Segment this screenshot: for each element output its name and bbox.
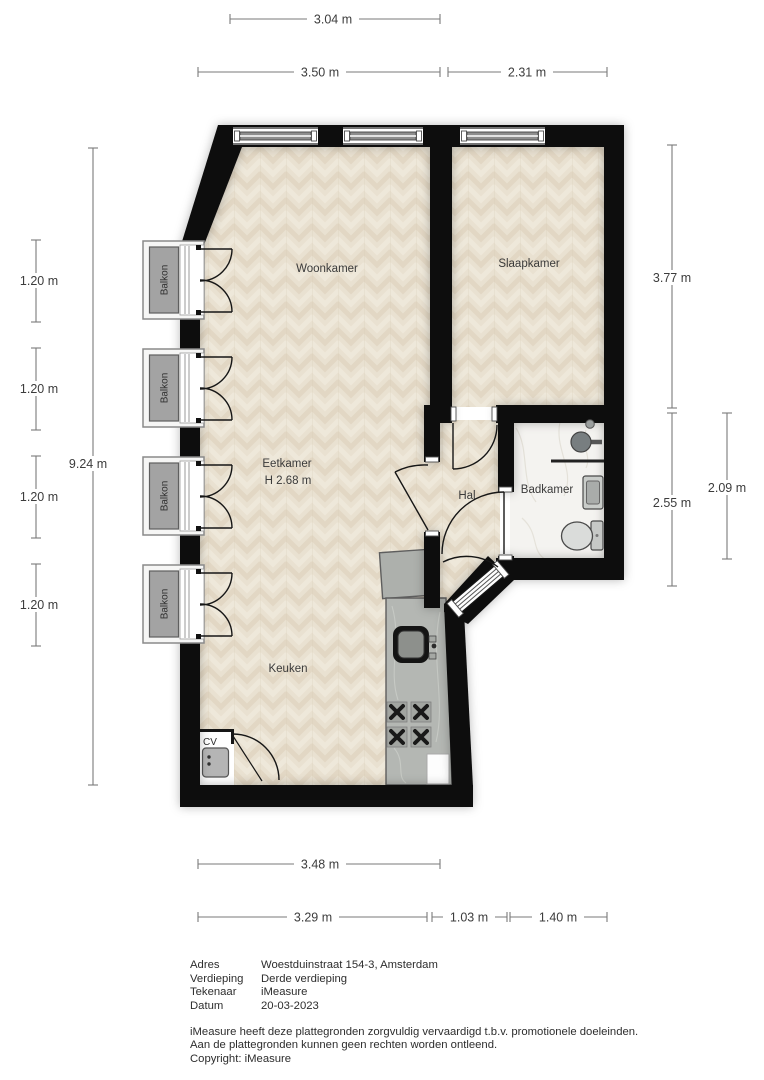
window-woonkamer-right <box>343 127 423 145</box>
info-label-tekenaar: Tekenaar <box>190 986 237 998</box>
info-value-datum: 20-03-2023 <box>261 1000 319 1012</box>
label-cv: CV <box>203 737 217 748</box>
floor-plan-page: Balkon Balkon <box>0 0 764 1080</box>
wall-bottom <box>180 785 473 807</box>
svg-text:2.09 m: 2.09 m <box>708 481 746 495</box>
label-keuken: Keuken <box>268 663 307 675</box>
disclaimer-line-2: Aan de plattegronden kunnen geen rechten… <box>190 1039 497 1051</box>
wall-badkamer-left-upper <box>498 423 514 492</box>
dim-bottom-left: 3.29 m <box>198 909 427 925</box>
svg-text:1.40 m: 1.40 m <box>539 911 577 925</box>
bathroom-sink <box>583 476 603 509</box>
window-slaapkamer <box>460 127 545 145</box>
floor-plan: Balkon Balkon <box>143 125 624 807</box>
balcony-label: Balkon <box>160 373 171 404</box>
info-value-tekenaar: iMeasure <box>261 986 307 998</box>
svg-text:1.20 m: 1.20 m <box>20 598 58 612</box>
svg-text:1.20 m: 1.20 m <box>20 382 58 396</box>
svg-text:3.48 m: 3.48 m <box>301 858 339 872</box>
dim-top-windows: 3.04 m <box>230 11 440 27</box>
info-value-verdieping: Derde verdieping <box>261 973 347 985</box>
dim-balkon-2: 1.20 m <box>14 348 64 430</box>
dim-top-right: 2.31 m <box>448 64 607 80</box>
dishwasher <box>427 754 449 784</box>
svg-text:1.20 m: 1.20 m <box>20 490 58 504</box>
boiler <box>203 748 229 777</box>
info-label-datum: Datum <box>190 1000 223 1012</box>
svg-text:3.29 m: 3.29 m <box>294 911 332 925</box>
wall-hal-left-upper <box>424 405 440 462</box>
label-hal: Hal <box>458 490 475 502</box>
balcony-label: Balkon <box>160 481 171 512</box>
floor-slaapkamer <box>450 147 606 407</box>
label-eetkamer: Eetkamer <box>262 458 311 470</box>
dim-balkon-1: 1.20 m <box>14 240 64 322</box>
dim-bottom-right: 1.40 m <box>510 909 607 925</box>
dim-balkon-3: 1.20 m <box>14 456 64 538</box>
svg-text:3.77 m: 3.77 m <box>653 271 691 285</box>
dim-left-total: 9.24 m <box>63 148 113 785</box>
balcony-label: Balkon <box>160 265 171 296</box>
svg-text:3.50 m: 3.50 m <box>301 66 339 80</box>
window-woonkamer-left <box>233 127 318 145</box>
dim-right-upper: 3.77 m <box>647 145 697 408</box>
label-eetkamer-ceiling: H 2.68 m <box>265 475 312 487</box>
label-badkamer: Badkamer <box>521 484 574 496</box>
svg-text:2.31 m: 2.31 m <box>508 66 546 80</box>
kitchen-cabinet-block <box>379 549 431 598</box>
dim-top-left: 3.50 m <box>198 64 440 80</box>
floor-plan-svg: Balkon Balkon <box>0 0 764 1080</box>
windows <box>233 127 545 145</box>
disclaimer-line-3: Copyright: iMeasure <box>190 1053 291 1065</box>
svg-text:9.24 m: 9.24 m <box>69 457 107 471</box>
dim-right-lower: 2.55 m <box>647 413 697 586</box>
wall-divider-woonkamer-slaapkamer <box>430 147 452 405</box>
info-value-adres: Woestduinstraat 154-3, Amsterdam <box>261 959 438 971</box>
disclaimer-line-1: iMeasure heeft deze plattegronden zorgvu… <box>190 1026 638 1038</box>
wall-slaapkamer-bottom-right <box>496 405 624 423</box>
svg-text:1.20 m: 1.20 m <box>20 274 58 288</box>
svg-text:1.03 m: 1.03 m <box>450 911 488 925</box>
label-slaapkamer: Slaapkamer <box>498 258 560 270</box>
dim-balkon-4: 1.20 m <box>14 564 64 646</box>
svg-text:3.04 m: 3.04 m <box>314 13 352 27</box>
balcony-label: Balkon <box>160 589 171 620</box>
label-woonkamer: Woonkamer <box>296 263 358 275</box>
svg-text:2.55 m: 2.55 m <box>653 496 691 510</box>
dim-bottom-upper: 3.48 m <box>198 856 440 872</box>
info-label-adres: Adres <box>190 959 220 971</box>
toilet <box>562 521 604 550</box>
wall-right <box>604 125 624 580</box>
info-label-verdieping: Verdieping <box>190 973 243 985</box>
info-block: Adres Woestduinstraat 154-3, Amsterdam V… <box>190 959 638 1065</box>
dim-bottom-mid: 1.03 m <box>432 909 507 925</box>
wall-hal-left-lower <box>424 532 440 608</box>
dim-right-inner: 2.09 m <box>702 413 752 559</box>
